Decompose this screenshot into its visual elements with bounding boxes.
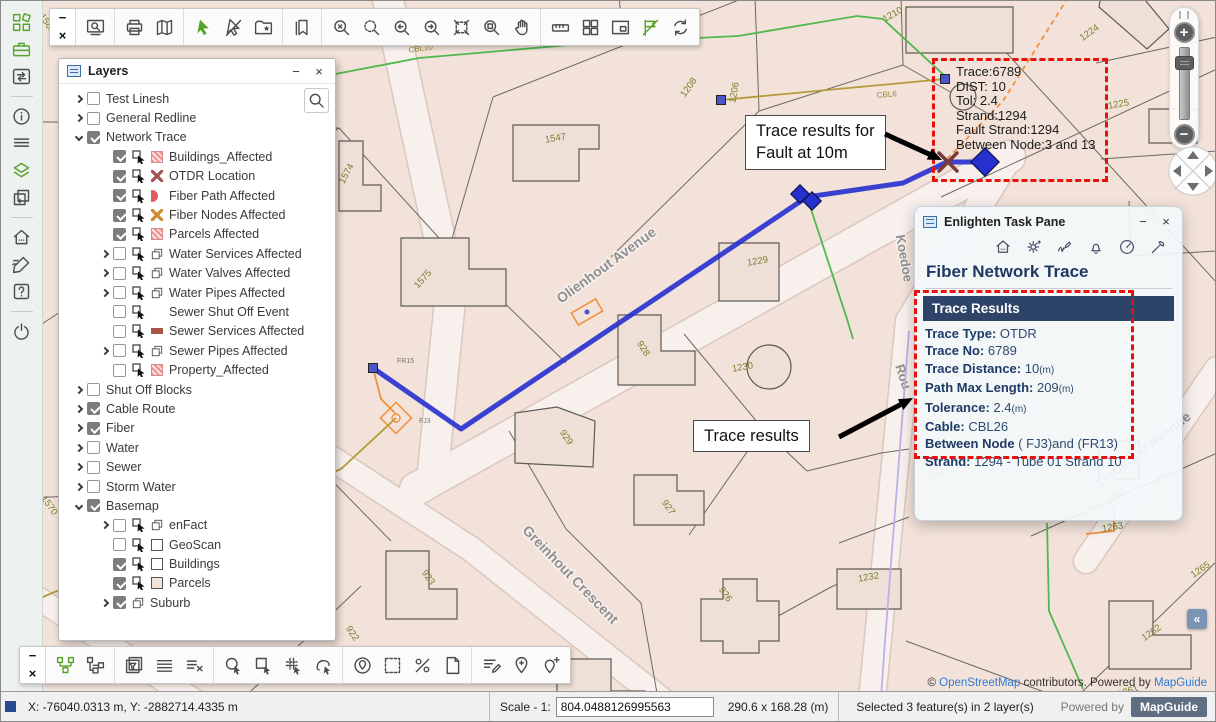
layer-item-shut-off-blocks[interactable]: Shut Off Blocks: [61, 380, 333, 399]
power-icon: [11, 321, 32, 342]
map-attribution: © OpenStreetMap contributors. Powered by…: [927, 677, 1207, 689]
trace-downstream-button[interactable]: [80, 649, 110, 681]
sidebar-home-button[interactable]: [7, 224, 37, 251]
add-folder-icon: [253, 17, 274, 38]
layers-tree: Test LineshGeneral RedlineNetwork TraceB…: [59, 84, 335, 613]
layer-item-water[interactable]: Water: [61, 438, 333, 457]
collapse-taskpane-button[interactable]: «: [1187, 609, 1207, 629]
left-sidebar: [1, 1, 43, 693]
add-point-button[interactable]: [506, 649, 536, 681]
toolbox-icon: [11, 39, 32, 60]
legend-swatch-beige: [151, 577, 163, 589]
layer-checkbox[interactable]: [113, 519, 126, 532]
sidebar-toolbox-button[interactable]: [7, 36, 37, 63]
measure-button[interactable]: [545, 11, 575, 43]
zoom-in-button[interactable]: [326, 11, 356, 43]
clear-selection-button[interactable]: [218, 11, 248, 43]
pointer-select-icon: [193, 17, 214, 38]
layers-search-button[interactable]: [304, 88, 329, 113]
chevron-right-icon[interactable]: [75, 463, 83, 471]
layer-item-suburb[interactable]: Suburb: [61, 593, 333, 612]
zoom-rectangle-icon: [361, 17, 382, 38]
chevron-right-icon[interactable]: [75, 114, 83, 122]
layer-item-enfact[interactable]: enFact: [61, 516, 333, 535]
legend-swatch-red-hatch: [151, 228, 163, 240]
divider: [11, 217, 33, 218]
maps-icon: [154, 17, 175, 38]
layer-item-buildings[interactable]: Buildings: [61, 554, 333, 573]
layer-label: Test Linesh: [106, 92, 169, 106]
layer-label: Cable Route: [106, 402, 176, 416]
refresh-icon: [670, 17, 691, 38]
sidebar-info-button[interactable]: [7, 103, 37, 130]
panel-icon: [67, 65, 81, 77]
report-icon: [442, 655, 463, 676]
layer-checkbox[interactable]: [113, 189, 126, 202]
selectable-icon: [132, 247, 147, 261]
layer-label: Sewer Pipes Affected: [169, 344, 288, 358]
chevron-down-icon[interactable]: [75, 133, 83, 141]
application-window: Olienhout AvenueGreinhout CrescentKoedoe…: [0, 0, 1216, 722]
layer-label: Water Valves Affected: [169, 266, 290, 280]
results-highlight-rect: [914, 290, 1134, 459]
home-icon: [994, 238, 1012, 256]
taskpane-signature-button[interactable]: [1053, 236, 1077, 258]
select-radius-button[interactable]: [218, 649, 248, 681]
layer-checkbox[interactable]: [87, 422, 100, 435]
status-icon: [5, 701, 16, 712]
layer-item-fiber-nodes-affected[interactable]: Fiber Nodes Affected: [61, 205, 333, 224]
split-icon: [412, 655, 433, 676]
select-region-icon: [382, 655, 403, 676]
info-icon: [11, 106, 32, 127]
layer-group-icon: [151, 519, 163, 531]
svg-text:FJ3: FJ3: [419, 418, 431, 425]
trace-upstream-button[interactable]: [50, 649, 80, 681]
extent-readout: 290.6 x 168.28 (m): [728, 700, 829, 714]
layer-item-fiber-path-affected[interactable]: Fiber Path Affected: [61, 186, 333, 205]
selectable-icon: [132, 169, 147, 183]
callout-fault-label: Trace results forFault at 10m: [745, 115, 886, 170]
mapguide-badge: MapGuide: [1131, 697, 1207, 717]
layer-item-sewer-pipes-affected[interactable]: Sewer Pipes Affected: [61, 341, 333, 360]
layer-label: Sewer: [106, 460, 141, 474]
layers-close-button[interactable]: ×: [311, 64, 327, 79]
layer-item-storm-water[interactable]: Storm Water: [61, 477, 333, 496]
legend-swatch-red-half: [151, 190, 158, 202]
layer-label: Property_Affected: [169, 363, 269, 377]
layer-checkbox[interactable]: [87, 499, 100, 512]
add-folder-button[interactable]: [248, 11, 278, 43]
layer-item-test-linesh[interactable]: Test Linesh: [61, 89, 333, 108]
zoom-next-button[interactable]: [416, 11, 446, 43]
print-button[interactable]: [119, 11, 149, 43]
swap-icon: [11, 66, 32, 87]
select-rectangle-icon: [253, 655, 274, 676]
selectable-icon: [132, 305, 147, 319]
legend-swatch-white: [151, 539, 163, 551]
selectable-icon: [132, 266, 147, 280]
layer-label: Shut Off Blocks: [106, 383, 192, 397]
bottom-toolbar-close-button[interactable]: ×: [29, 668, 37, 680]
taskpane-home-button[interactable]: [991, 236, 1015, 258]
layers-minimize-button[interactable]: −: [288, 64, 304, 79]
layer-label: Fiber Path Affected: [169, 189, 275, 203]
layer-label: Parcels Affected: [169, 227, 259, 241]
svg-text:FR15: FR15: [397, 358, 414, 365]
chevron-down-icon[interactable]: [75, 502, 83, 510]
task-pane-icon-row: [915, 232, 1182, 260]
selectable-icon: [132, 324, 147, 338]
toolbar-minimize-button[interactable]: −: [59, 12, 67, 24]
chevron-right-icon[interactable]: [101, 599, 109, 607]
edit-attributes-button[interactable]: [476, 649, 506, 681]
split-button[interactable]: [407, 649, 437, 681]
home-icon: [11, 227, 32, 248]
layer-item-water-valves-affected[interactable]: Water Valves Affected: [61, 264, 333, 283]
sidebar-apps-button[interactable]: [7, 9, 37, 36]
add-point-alt-icon: [541, 655, 562, 676]
layer-label: Fiber Nodes Affected: [169, 208, 286, 222]
coordinate-readout: X: -76040.0313 m, Y: -2882714.4335 m: [18, 692, 490, 721]
layer-label: Buildings_Affected: [169, 150, 272, 164]
layer-checkbox[interactable]: [87, 461, 100, 474]
zoom-extents-icon: [451, 17, 472, 38]
layer-checkbox[interactable]: [87, 131, 100, 144]
layer-item-basemap[interactable]: Basemap: [61, 496, 333, 515]
layer-checkbox[interactable]: [113, 344, 126, 357]
selectable-icon: [132, 208, 147, 222]
sidebar-copy-button[interactable]: [7, 184, 37, 211]
chevron-right-icon[interactable]: [75, 482, 83, 490]
selectable-icon: [132, 286, 147, 300]
layer-checkbox[interactable]: [113, 364, 126, 377]
layer-checkbox[interactable]: [113, 150, 126, 163]
layer-item-sewer-shut-off-event[interactable]: Sewer Shut Off Event: [61, 302, 333, 321]
select-radius-icon: [223, 655, 244, 676]
add-point-alt-button[interactable]: [536, 649, 566, 681]
legend-swatch-white: [151, 558, 163, 570]
legend-swatch-red-hatch: [151, 151, 163, 163]
zoom-rectangle-button[interactable]: [356, 11, 386, 43]
select-rectangle-button[interactable]: [248, 649, 278, 681]
legend-swatch-red-bar: [151, 328, 163, 334]
layer-checkbox[interactable]: [87, 383, 100, 396]
selectable-icon: [132, 518, 147, 532]
layer-label: Water Pipes Affected: [169, 286, 285, 300]
redline-icon: [640, 17, 661, 38]
layer-item-sewer[interactable]: Sewer: [61, 457, 333, 476]
pan-icon: [511, 17, 532, 38]
layer-checkbox[interactable]: [113, 209, 126, 222]
trace-upstream-icon: [55, 655, 76, 676]
search-icon: [306, 90, 327, 111]
layer-checkbox[interactable]: [87, 92, 100, 105]
layer-checkbox[interactable]: [113, 170, 126, 183]
chevron-right-icon[interactable]: [75, 424, 83, 432]
selection-status: Selected 3 feature(s) in 2 layer(s): [839, 692, 1050, 721]
layer-item-cable-route[interactable]: Cable Route: [61, 399, 333, 418]
layer-label: General Redline: [106, 111, 196, 125]
clear-selection-icon: [223, 17, 244, 38]
sidebar-help-button[interactable]: [7, 278, 37, 305]
select-window-button[interactable]: [80, 11, 110, 43]
layer-label: Sewer Services Affected: [169, 324, 304, 338]
layer-item-property-affected[interactable]: Property_Affected: [61, 360, 333, 379]
layer-group-icon: [151, 267, 163, 279]
layer-label: Suburb: [150, 596, 190, 610]
sidebar-layers-button[interactable]: [7, 157, 37, 184]
selectable-icon: [132, 150, 147, 164]
layer-checkbox[interactable]: [113, 305, 126, 318]
tools-icon: [1149, 238, 1167, 256]
layer-label: Water: [106, 441, 139, 455]
locate-icon: [352, 655, 373, 676]
task-pane-title: Enlighten Task Pane: [944, 215, 1128, 229]
zoom-slider-track[interactable]: [1179, 47, 1190, 120]
clear-list-button[interactable]: [179, 649, 209, 681]
list-view-button[interactable]: [149, 649, 179, 681]
chevron-right-icon[interactable]: [101, 521, 109, 529]
select-region-button[interactable]: [377, 649, 407, 681]
layer-label: Basemap: [106, 499, 159, 513]
sidebar-legend-button[interactable]: [7, 130, 37, 157]
sidebar-power-button[interactable]: [7, 318, 37, 345]
svg-text:CBL6: CBL6: [876, 89, 897, 100]
bookmark-icon: [292, 17, 313, 38]
chevron-right-icon[interactable]: [101, 269, 109, 277]
measure-icon: [550, 17, 571, 38]
clear-list-icon: [184, 655, 205, 676]
sidebar-sketch-button[interactable]: [7, 251, 37, 278]
bottom-toolbar: − ×: [19, 646, 571, 684]
zoom-selected-icon: [481, 17, 502, 38]
layer-item-parcels[interactable]: Parcels: [61, 574, 333, 593]
layer-item-water-pipes-affected[interactable]: Water Pipes Affected: [61, 283, 333, 302]
pan-control[interactable]: [1167, 145, 1216, 197]
taskpane-gauge-button[interactable]: [1115, 236, 1139, 258]
selectable-icon: [132, 189, 147, 203]
apps-icon: [11, 12, 32, 33]
zoom-extents-button[interactable]: [446, 11, 476, 43]
layer-checkbox[interactable]: [113, 286, 126, 299]
chevron-right-icon[interactable]: [75, 94, 83, 102]
zoom-slider-handle[interactable]: [1175, 56, 1194, 70]
settings-icon: [1025, 238, 1043, 256]
layer-checkbox[interactable]: [87, 480, 100, 493]
locate-button[interactable]: [347, 649, 377, 681]
selectable-icon: [132, 538, 147, 552]
zoom-grip[interactable]: [1179, 11, 1189, 19]
trace-downstream-icon: [85, 655, 106, 676]
legend-swatch-red-hatch: [151, 364, 163, 376]
bottom-toolbar-minimize-button[interactable]: −: [29, 650, 37, 662]
mapguide-link[interactable]: MapGuide: [1154, 677, 1207, 689]
filter-layers-icon: [124, 655, 145, 676]
layer-checkbox[interactable]: [113, 538, 126, 551]
top-toolbar: − ×: [49, 8, 700, 46]
zoom-previous-button[interactable]: [386, 11, 416, 43]
legend-swatch-red-x: [151, 170, 163, 182]
layer-label: Storm Water: [106, 480, 176, 494]
layers-panel-title: Layers: [88, 64, 281, 78]
zoom-in-button[interactable]: +: [1174, 22, 1195, 43]
layer-group-icon: [132, 597, 144, 609]
divider: [11, 311, 33, 312]
signature-icon: [1056, 238, 1074, 256]
layer-label: GeoScan: [169, 538, 221, 552]
bookmark-button[interactable]: [287, 11, 317, 43]
copy-icon: [11, 187, 32, 208]
layer-checkbox[interactable]: [87, 402, 100, 415]
select-intersect-icon: [283, 655, 304, 676]
tile-windows-icon: [580, 17, 601, 38]
selectable-icon: [132, 576, 147, 590]
taskpane-settings-button[interactable]: [1022, 236, 1046, 258]
status-bar: X: -76040.0313 m, Y: -2882714.4335 m Sca…: [1, 691, 1216, 721]
layer-item-buildings-affected[interactable]: Buildings_Affected: [61, 147, 333, 166]
refresh-button[interactable]: [665, 11, 695, 43]
select-window-icon: [85, 17, 106, 38]
maps-button[interactable]: [149, 11, 179, 43]
selectable-icon: [132, 363, 147, 377]
pointer-select-button[interactable]: [188, 11, 218, 43]
chevron-right-icon[interactable]: [75, 405, 83, 413]
layer-checkbox[interactable]: [113, 325, 126, 338]
zoom-next-icon: [421, 17, 442, 38]
scale-readout: Scale - 1: 290.6 x 168.28 (m): [490, 692, 839, 721]
callout-trace-label: Trace results: [693, 420, 810, 452]
layer-item-geoscan[interactable]: GeoScan: [61, 535, 333, 554]
overview-map-icon: [610, 17, 631, 38]
task-pane-heading: Fiber Network Trace: [915, 260, 1182, 288]
chevron-right-icon[interactable]: [75, 443, 83, 451]
layer-group-icon: [151, 345, 163, 357]
alerts-icon: [1087, 238, 1105, 256]
print-icon: [124, 17, 145, 38]
layer-checkbox[interactable]: [113, 558, 126, 571]
scale-input[interactable]: [556, 697, 714, 717]
sketch-icon: [11, 254, 32, 275]
layer-item-water-services-affected[interactable]: Water Services Affected: [61, 244, 333, 263]
pan-button[interactable]: [506, 11, 536, 43]
list-view-icon: [154, 655, 175, 676]
layer-label: enFact: [169, 518, 207, 532]
layer-item-network-trace[interactable]: Network Trace: [61, 128, 333, 147]
layer-label: Sewer Shut Off Event: [169, 305, 289, 319]
layers-panel: Layers − × Test LineshGeneral RedlineNet…: [58, 58, 336, 641]
chevron-right-icon[interactable]: [101, 288, 109, 296]
layer-item-fiber[interactable]: Fiber: [61, 419, 333, 438]
taskpane-tools-button[interactable]: [1146, 236, 1170, 258]
zoom-in-icon: [331, 17, 352, 38]
selectable-icon: [132, 344, 147, 358]
taskpane-alerts-button[interactable]: [1084, 236, 1108, 258]
layer-label: Buildings: [169, 557, 220, 571]
layer-group-icon: [151, 248, 163, 260]
divider: [11, 96, 33, 97]
edit-attributes-icon: [481, 655, 502, 676]
add-point-icon: [511, 655, 532, 676]
layer-label: Fiber: [106, 421, 134, 435]
toolbar-close-button[interactable]: ×: [59, 30, 67, 42]
divider: [925, 288, 1172, 289]
overview-map-button[interactable]: [605, 11, 635, 43]
layer-checkbox[interactable]: [113, 228, 126, 241]
zoom-control: + −: [1169, 7, 1199, 149]
layer-item-otdr-location[interactable]: OTDR Location: [61, 167, 333, 186]
powered-by: Powered by MapGuide: [1051, 692, 1216, 721]
sidebar-swap-button[interactable]: [7, 63, 37, 90]
chevron-right-icon[interactable]: [101, 347, 109, 355]
layer-checkbox[interactable]: [113, 267, 126, 280]
tile-windows-button[interactable]: [575, 11, 605, 43]
layer-label: OTDR Location: [169, 169, 255, 183]
task-pane-close-button[interactable]: ×: [1158, 214, 1174, 229]
zoom-selected-button[interactable]: [476, 11, 506, 43]
select-polygon-icon: [313, 655, 334, 676]
zoom-out-button[interactable]: −: [1174, 124, 1195, 145]
layer-checkbox[interactable]: [113, 247, 126, 260]
layer-group-icon: [151, 287, 163, 299]
select-polygon-button[interactable]: [308, 649, 338, 681]
layer-label: Network Trace: [106, 130, 187, 144]
select-intersect-button[interactable]: [278, 649, 308, 681]
layers-icon: [11, 160, 32, 181]
layer-item-general-redline[interactable]: General Redline: [61, 108, 333, 127]
help-icon: [11, 281, 32, 302]
redline-button[interactable]: [635, 11, 665, 43]
panel-icon: [923, 216, 937, 228]
gauge-icon: [1118, 238, 1136, 256]
selectable-icon: [132, 557, 147, 571]
chevron-right-icon[interactable]: [101, 250, 109, 258]
layer-checkbox[interactable]: [87, 441, 100, 454]
task-pane-minimize-button[interactable]: −: [1135, 214, 1151, 229]
zoom-previous-icon: [391, 17, 412, 38]
filter-layers-button[interactable]: [119, 649, 149, 681]
legend-icon: [11, 133, 32, 154]
layer-checkbox[interactable]: [113, 596, 126, 609]
layer-checkbox[interactable]: [87, 112, 100, 125]
fault-annotation: Trace:6789DIST: 10Tol: 2.4Strand:1294Fau…: [956, 65, 1096, 152]
layer-item-parcels-affected[interactable]: Parcels Affected: [61, 225, 333, 244]
osm-link[interactable]: OpenStreetMap: [939, 677, 1020, 689]
layer-label: Parcels: [169, 576, 211, 590]
layer-item-sewer-services-affected[interactable]: Sewer Services Affected: [61, 322, 333, 341]
layer-checkbox[interactable]: [113, 577, 126, 590]
report-button[interactable]: [437, 649, 467, 681]
legend-swatch-orange-x: [151, 209, 163, 221]
layer-label: Water Services Affected: [169, 247, 302, 261]
chevron-right-icon[interactable]: [75, 385, 83, 393]
selectable-icon: [132, 227, 147, 241]
